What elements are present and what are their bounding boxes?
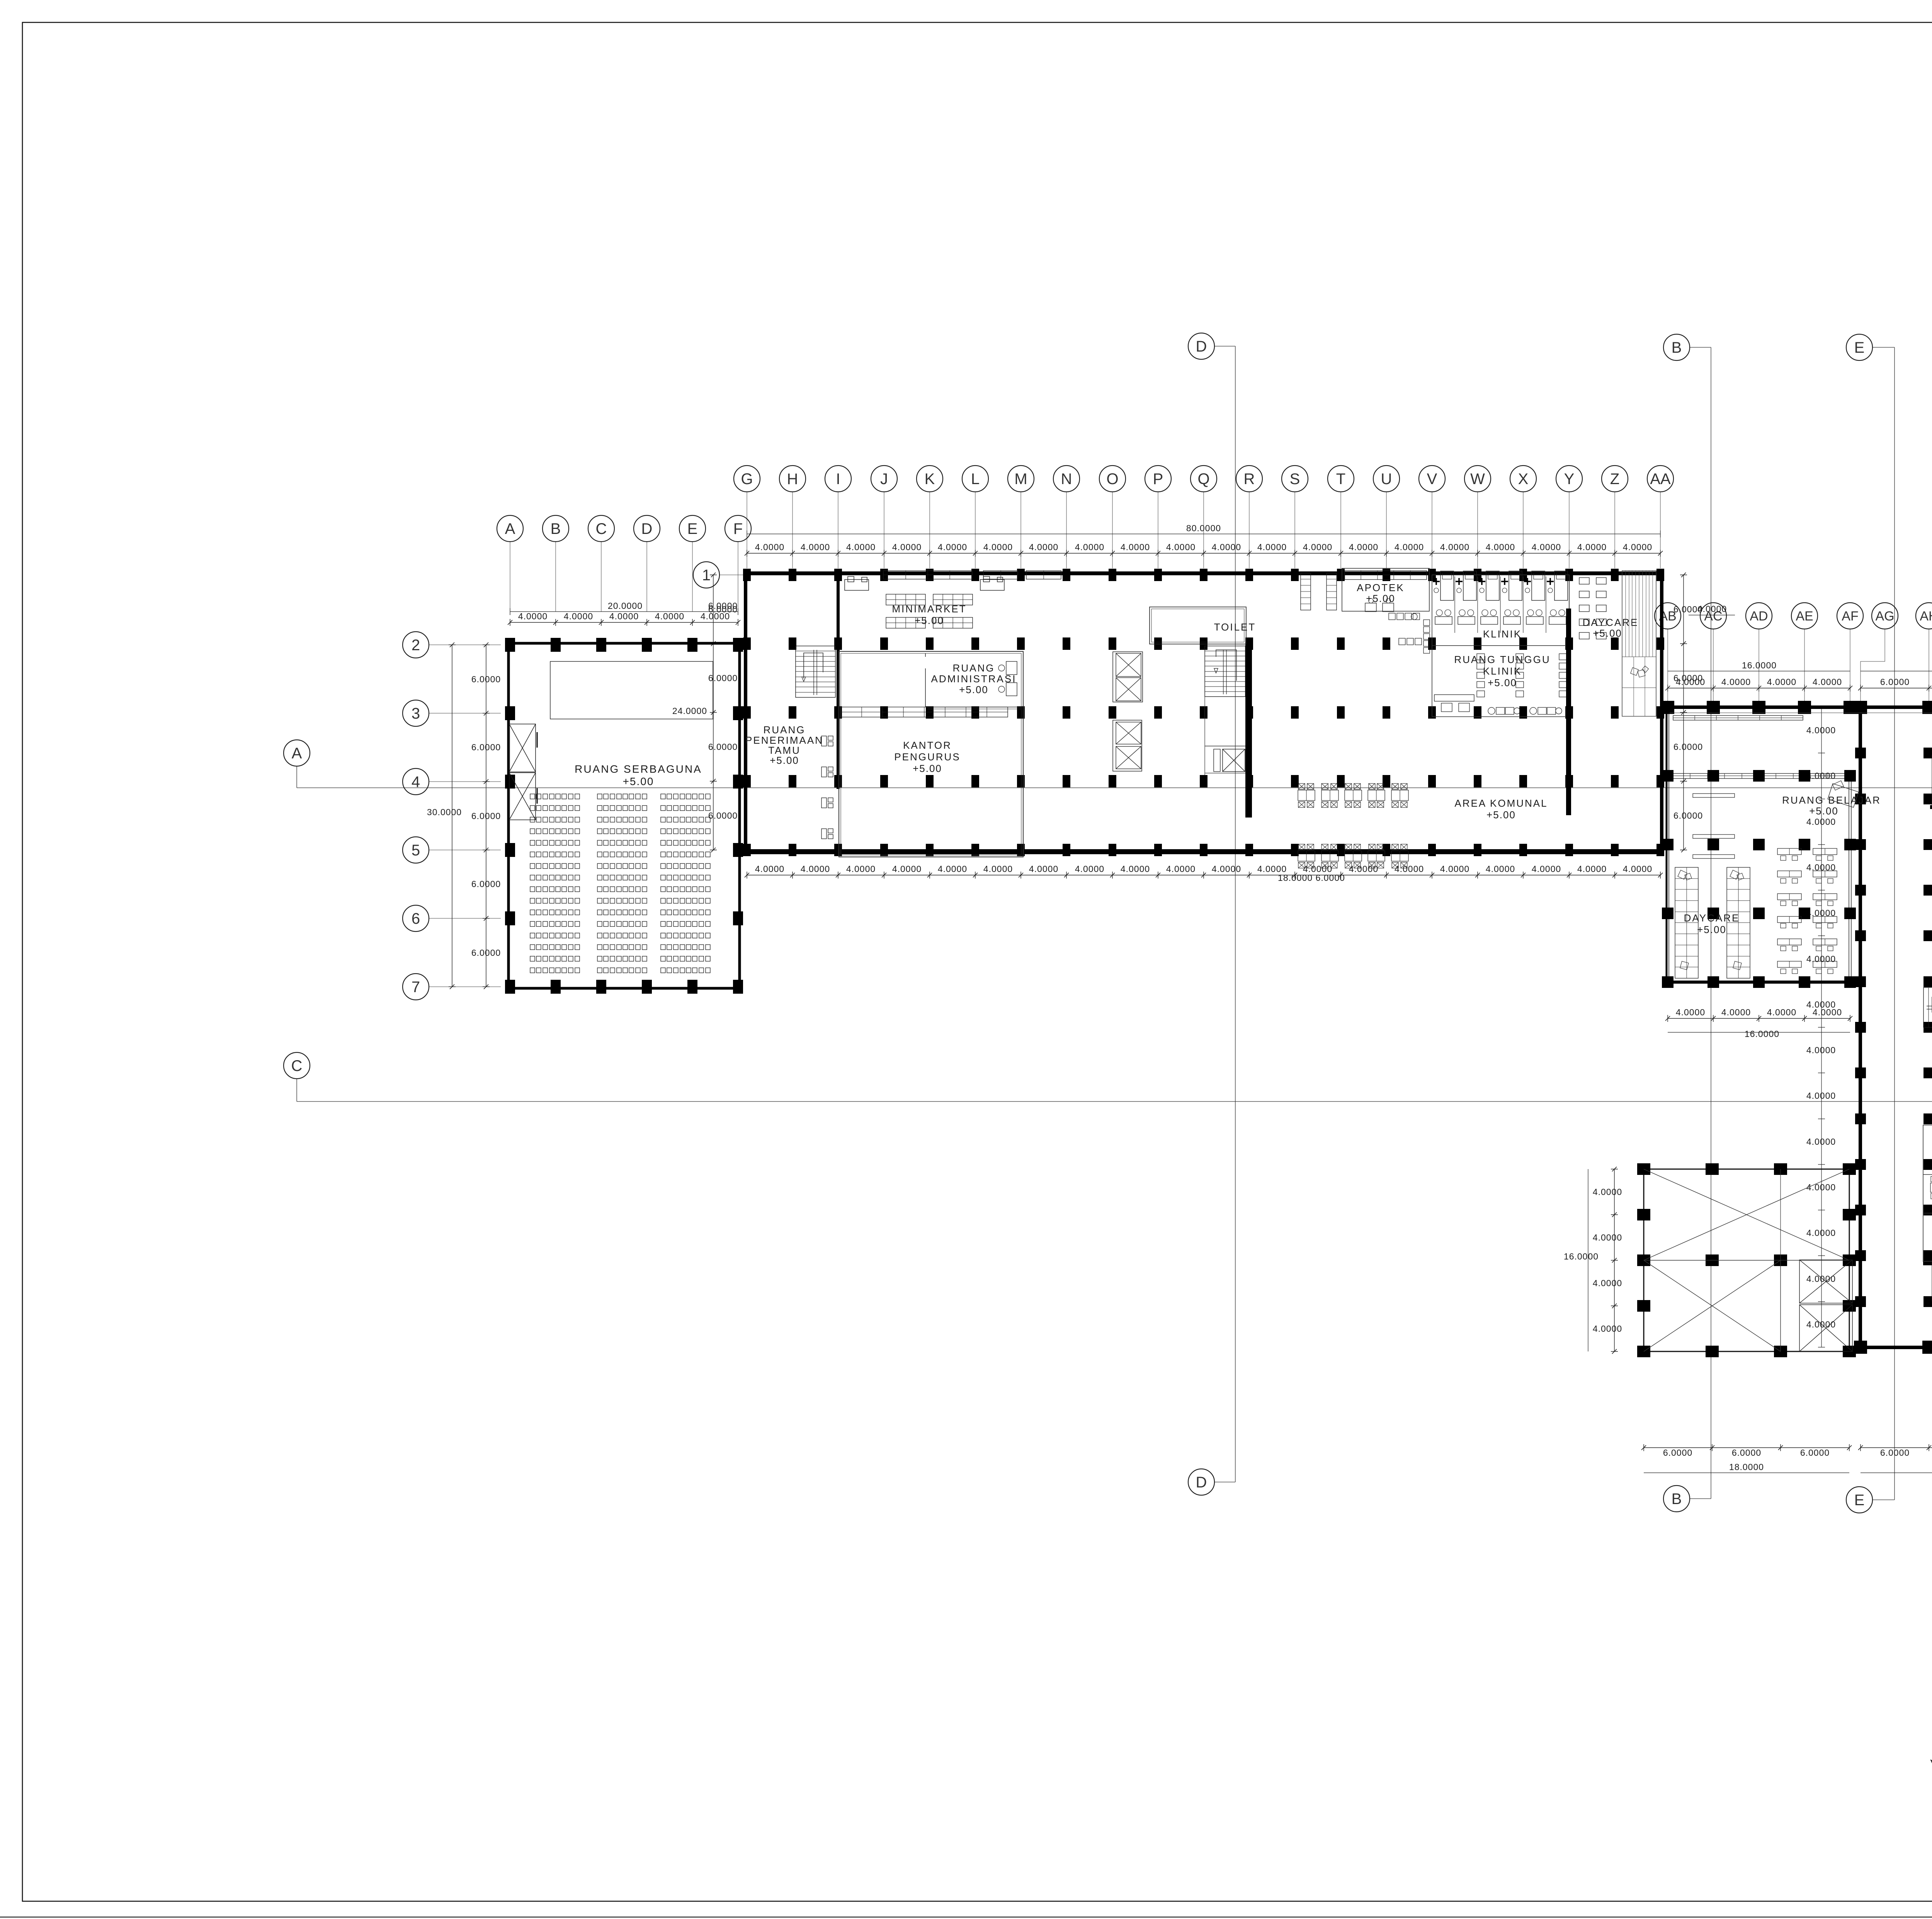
svg-text:16.0000: 16.0000 [1564, 1251, 1599, 1261]
svg-text:4.0000: 4.0000 [1593, 1232, 1622, 1243]
svg-text:4.0000: 4.0000 [1593, 1278, 1622, 1288]
svg-text:A: A [292, 745, 302, 762]
svg-text:4.0000: 4.0000 [1623, 542, 1652, 552]
svg-text:4.0000: 4.0000 [1806, 1137, 1836, 1147]
svg-text:AA: AA [1650, 471, 1671, 488]
svg-text:4.0000: 4.0000 [1806, 1182, 1836, 1192]
svg-text:+5.00: +5.00 [770, 755, 799, 766]
svg-text:4.0000: 4.0000 [1303, 542, 1332, 552]
svg-text:A: A [505, 520, 515, 537]
svg-text:K: K [925, 471, 935, 488]
svg-text:4.0000: 4.0000 [1532, 542, 1561, 552]
svg-text:4.0000: 4.0000 [1212, 864, 1241, 874]
svg-text:MINIMARKET: MINIMARKET [892, 603, 966, 615]
svg-text:4.0000: 4.0000 [1029, 542, 1058, 552]
svg-text:6.0000: 6.0000 [471, 742, 501, 752]
svg-text:RUANG: RUANG [764, 724, 806, 736]
svg-text:PENGURUS: PENGURUS [894, 751, 960, 763]
svg-text:4.0000: 4.0000 [1767, 1007, 1796, 1017]
svg-text:4.0000: 4.0000 [1767, 677, 1796, 687]
svg-text:4.0000: 4.0000 [1806, 1228, 1836, 1238]
svg-text:20.0000: 20.0000 [608, 601, 643, 611]
svg-text:4.0000: 4.0000 [1577, 542, 1607, 552]
svg-text:4.0000: 4.0000 [1721, 1007, 1751, 1017]
svg-text:AD: AD [1750, 609, 1768, 624]
svg-text:4.0000: 4.0000 [1697, 604, 1727, 614]
svg-text:3: 3 [412, 705, 420, 722]
svg-text:4.0000: 4.0000 [1806, 817, 1836, 827]
svg-text:4.0000: 4.0000 [892, 864, 922, 874]
svg-text:6.0000: 6.0000 [1663, 1448, 1692, 1458]
svg-text:4.0000: 4.0000 [983, 542, 1013, 552]
svg-text:4.0000: 4.0000 [1813, 1007, 1842, 1017]
svg-text:4.0000: 4.0000 [846, 542, 876, 552]
svg-text:1: 1 [702, 567, 711, 584]
svg-text:4.0000: 4.0000 [938, 864, 967, 874]
svg-text:KANTOR: KANTOR [903, 739, 952, 751]
svg-text:S: S [1290, 471, 1300, 488]
svg-text:AE: AE [1796, 609, 1813, 624]
svg-text:6.0000: 6.0000 [1673, 742, 1703, 752]
svg-text:AREA KOMUNAL: AREA KOMUNAL [1454, 797, 1548, 809]
svg-text:4.0000: 4.0000 [564, 611, 593, 621]
svg-text:C: C [596, 520, 607, 537]
svg-text:4.0000: 4.0000 [1806, 1091, 1836, 1101]
svg-text:R: R [1244, 471, 1255, 488]
svg-text:16.0000: 16.0000 [1742, 660, 1777, 670]
svg-text:4.0000: 4.0000 [801, 864, 830, 874]
svg-text:6: 6 [412, 910, 420, 927]
svg-text:4.0000: 4.0000 [1075, 864, 1104, 874]
svg-text:4.0000: 4.0000 [1806, 954, 1836, 964]
svg-text:6.0000: 6.0000 [471, 674, 501, 684]
svg-text:4.0000: 4.0000 [1349, 864, 1378, 874]
svg-text:RUANG SERBAGUNA: RUANG SERBAGUNA [575, 763, 702, 775]
svg-text:P: P [1153, 471, 1163, 488]
svg-text:4.0000: 4.0000 [1029, 864, 1058, 874]
svg-text:4.0000: 4.0000 [983, 864, 1013, 874]
svg-text:6.0000: 6.0000 [1800, 1448, 1830, 1458]
svg-text:U: U [1381, 471, 1392, 488]
svg-text:H: H [787, 471, 798, 488]
svg-text:N: N [1061, 471, 1072, 488]
svg-text:80.0000: 80.0000 [1186, 523, 1221, 533]
svg-text:E: E [1854, 339, 1865, 356]
svg-text:4.0000: 4.0000 [1806, 1319, 1836, 1329]
svg-text:4.0000: 4.0000 [1166, 864, 1196, 874]
svg-text:I: I [836, 471, 840, 488]
svg-text:4.0000: 4.0000 [1121, 542, 1150, 552]
svg-text:6.0000: 6.0000 [708, 811, 738, 821]
svg-text:4.0000: 4.0000 [1721, 677, 1751, 687]
svg-text:M: M [1014, 471, 1027, 488]
svg-text:4.0000: 4.0000 [892, 542, 922, 552]
svg-text:J: J [880, 471, 888, 488]
svg-text:C: C [291, 1057, 303, 1074]
svg-text:Y: Y [1564, 471, 1575, 488]
svg-text:X: X [1518, 471, 1529, 488]
svg-text:4.0000: 4.0000 [1257, 542, 1287, 552]
svg-text:4.0000: 4.0000 [1593, 1187, 1622, 1197]
svg-text:V: V [1427, 471, 1437, 488]
svg-text:6.0000: 6.0000 [471, 879, 501, 889]
svg-text:4.0000: 4.0000 [846, 864, 876, 874]
svg-text:APOTEK: APOTEK [1357, 582, 1404, 593]
svg-text:4.0000: 4.0000 [1593, 1324, 1622, 1334]
svg-text:4.0000: 4.0000 [1806, 725, 1836, 735]
svg-text:4.0000: 4.0000 [1676, 1007, 1705, 1017]
svg-text:6.0000: 6.0000 [708, 742, 738, 752]
svg-text:4.0000: 4.0000 [1395, 864, 1424, 874]
svg-text:6.0000: 6.0000 [708, 604, 738, 614]
svg-text:4.0000: 4.0000 [518, 611, 548, 621]
svg-text:6.0000: 6.0000 [471, 811, 501, 821]
svg-text:T: T [1336, 471, 1345, 488]
svg-text:+5.00: +5.00 [1486, 809, 1516, 821]
svg-text:+5.00: +5.00 [959, 684, 988, 695]
svg-text:4.0000: 4.0000 [1806, 1045, 1836, 1055]
svg-text:4.0000: 4.0000 [1440, 542, 1469, 552]
svg-text:16.0000: 16.0000 [1745, 1029, 1779, 1039]
svg-text:+5.00: +5.00 [913, 763, 942, 774]
svg-text:E: E [1854, 1492, 1865, 1509]
svg-text:4.0000: 4.0000 [1486, 542, 1515, 552]
svg-text:D: D [641, 520, 653, 537]
svg-text:4.0000: 4.0000 [755, 542, 784, 552]
svg-text:4.0000: 4.0000 [1486, 864, 1515, 874]
svg-text:4.0000: 4.0000 [1212, 542, 1241, 552]
svg-text:ADMINISTRASI: ADMINISTRASI [931, 673, 1017, 685]
svg-text:4.0000: 4.0000 [1166, 542, 1196, 552]
svg-text:B: B [1672, 1491, 1682, 1508]
svg-text:6.0000: 6.0000 [1732, 1448, 1761, 1458]
svg-text:B: B [1672, 339, 1682, 356]
svg-text:+5.00: +5.00 [1809, 805, 1838, 817]
svg-text:6.0000: 6.0000 [471, 948, 501, 958]
svg-text:B: B [551, 520, 561, 537]
svg-text:4.0000: 4.0000 [755, 864, 784, 874]
svg-text:G: G [741, 471, 753, 488]
svg-text:KLINIK: KLINIK [1483, 628, 1522, 640]
svg-text:+5.00: +5.00 [1593, 627, 1622, 639]
svg-text:+5.00: +5.00 [1697, 924, 1726, 935]
svg-text:4.0000: 4.0000 [1577, 864, 1607, 874]
svg-text:W: W [1470, 471, 1485, 488]
svg-text:4.0000: 4.0000 [1806, 1274, 1836, 1284]
svg-text:Q: Q [1197, 471, 1209, 488]
svg-text:DAYCARE: DAYCARE [1684, 912, 1740, 924]
svg-text:AH: AH [1920, 609, 1932, 624]
svg-text:D: D [1196, 1474, 1207, 1491]
svg-text:E: E [687, 520, 698, 537]
svg-text:DAYCARE: DAYCARE [1583, 617, 1639, 628]
svg-text:4.0000: 4.0000 [655, 611, 684, 621]
svg-text:6.0000: 6.0000 [708, 673, 738, 683]
svg-text:4.0000: 4.0000 [801, 542, 830, 552]
svg-text:O: O [1106, 471, 1118, 488]
svg-text:7: 7 [412, 979, 420, 996]
svg-text:TOILET: TOILET [1214, 621, 1256, 633]
svg-text:+5.00: +5.00 [623, 775, 654, 787]
svg-text:6.0000: 6.0000 [1673, 811, 1703, 821]
svg-text:AG: AG [1875, 609, 1894, 624]
svg-text:6.0000: 6.0000 [1880, 1448, 1910, 1458]
svg-text:D: D [1196, 338, 1207, 355]
svg-text:4.0000: 4.0000 [1440, 864, 1469, 874]
svg-text:AF: AF [1842, 609, 1858, 624]
svg-text:4.0000: 4.0000 [938, 542, 967, 552]
svg-text:RUANG: RUANG [953, 662, 995, 674]
svg-text:4.0000: 4.0000 [1349, 542, 1378, 552]
svg-text:4: 4 [412, 773, 420, 790]
svg-text:4.0000: 4.0000 [609, 611, 639, 621]
svg-text:RUANG TUNGGU: RUANG TUNGGU [1454, 654, 1550, 665]
svg-text:4.0000: 4.0000 [1532, 864, 1561, 874]
svg-text:4.0000: 4.0000 [1813, 677, 1842, 687]
svg-text:2: 2 [412, 637, 420, 654]
svg-text:6.0000: 6.0000 [1880, 677, 1910, 687]
svg-text:4.0000: 4.0000 [1395, 542, 1424, 552]
svg-text:4.0000: 4.0000 [1623, 864, 1652, 874]
svg-text:Z: Z [1610, 471, 1619, 488]
svg-text:L: L [971, 471, 980, 488]
svg-text:24.0000: 24.0000 [672, 706, 707, 716]
svg-text:4.0000: 4.0000 [1075, 542, 1104, 552]
svg-text:18.0000 6.0000: 18.0000 6.0000 [1278, 873, 1345, 883]
svg-text:+5.00: +5.00 [1488, 677, 1517, 688]
svg-text:30.0000: 30.0000 [427, 807, 462, 817]
svg-text:+5.00: +5.00 [915, 615, 944, 626]
svg-text:18.0000: 18.0000 [1729, 1462, 1764, 1472]
svg-text:4.0000: 4.0000 [1676, 677, 1705, 687]
svg-text:F: F [733, 520, 743, 537]
svg-text:4.0000: 4.0000 [1121, 864, 1150, 874]
svg-text:5: 5 [412, 842, 420, 859]
